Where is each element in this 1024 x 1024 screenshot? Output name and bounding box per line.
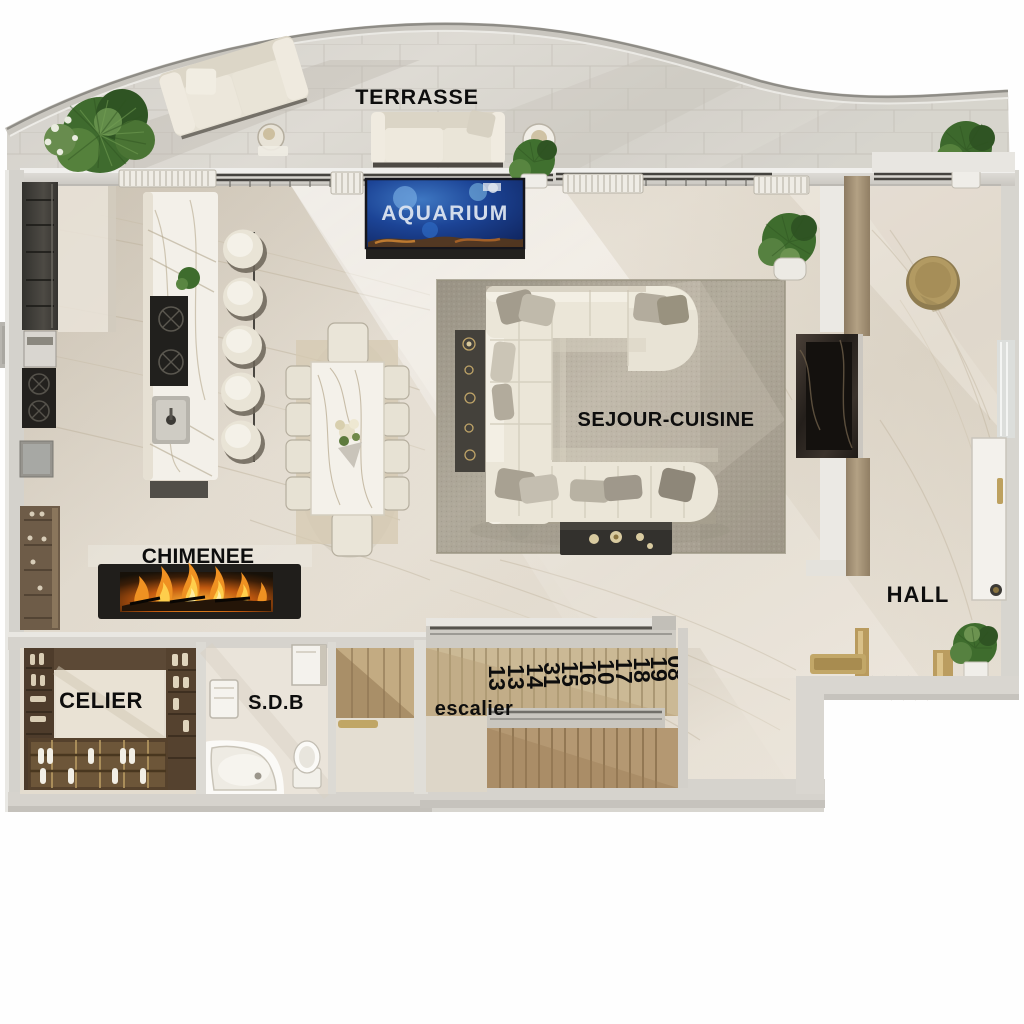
svg-text:AQUARIUM: AQUARIUM [381,202,509,225]
svg-text:S.D.B: S.D.B [248,692,304,714]
svg-text:CHIMENEE: CHIMENEE [142,545,254,568]
svg-text:SEJOUR-CUISINE: SEJOUR-CUISINE [577,409,754,431]
svg-text:CELIER: CELIER [59,688,143,713]
svg-text:HALL: HALL [887,582,950,607]
svg-text:escalier: escalier [435,698,514,720]
svg-text:TERRASSE: TERRASSE [355,85,478,109]
